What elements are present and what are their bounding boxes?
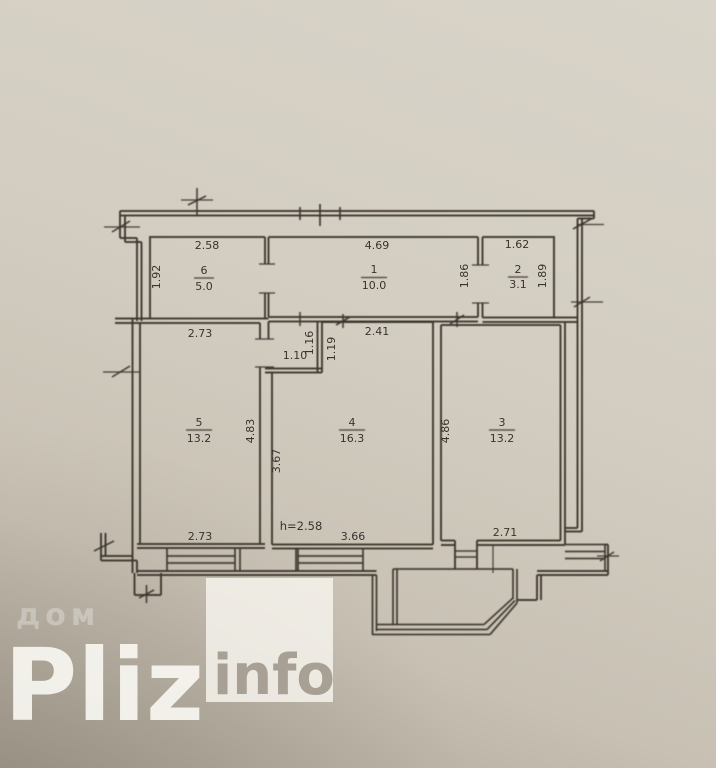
- dim-room5-right: 4.83: [244, 419, 257, 444]
- room-2-area: 3.1: [509, 278, 527, 291]
- room-3-number: 3: [499, 416, 506, 429]
- dim-room4-left: 3.67: [270, 449, 283, 474]
- room-4-number: 4: [349, 416, 356, 429]
- room-5-area: 13.2: [187, 432, 212, 445]
- watermark-info-text: info: [213, 648, 335, 704]
- ceiling-height-note: h=2.58: [280, 519, 323, 533]
- room-walls: [115, 237, 578, 549]
- room-1-number: 1: [371, 263, 378, 276]
- floor-plan-photo: 2.58 1.92 6 5.0 4.69 1.86 1 10.0 1.62 1.…: [0, 0, 716, 768]
- room-3-area: 13.2: [490, 432, 515, 445]
- room-4-area: 16.3: [340, 432, 365, 445]
- dim-room5-top: 2.73: [188, 327, 213, 340]
- dim-room4-top: 2.41: [365, 325, 390, 338]
- room-6-number: 6: [201, 264, 208, 277]
- room-label-underlines: [186, 277, 528, 430]
- dim-room1-right: 1.86: [458, 264, 471, 289]
- dim-room4-bottom: 3.66: [341, 530, 366, 543]
- room-2-number: 2: [515, 263, 522, 276]
- dim-room3-left: 4.86: [439, 419, 452, 444]
- balcony: [373, 569, 518, 635]
- dim-room3-bottom: 2.71: [493, 526, 518, 539]
- dim-room1-top: 4.69: [365, 239, 390, 252]
- dim-room2-top: 1.62: [505, 238, 530, 251]
- dim-room5-bottom: 2.73: [188, 530, 213, 543]
- watermark-brand-text: Pliz: [4, 636, 204, 736]
- room-6-area: 5.0: [195, 280, 213, 293]
- room-1-area: 10.0: [362, 279, 387, 292]
- room-5-number: 5: [196, 416, 203, 429]
- dim-room2-right: 1.89: [536, 264, 549, 289]
- windows: [167, 204, 605, 571]
- dim-room6-left: 1.92: [150, 265, 163, 290]
- dim-nook-outer: 1.16: [303, 331, 316, 356]
- dim-nook-inner: 1.19: [325, 337, 338, 362]
- dim-room6-top: 2.58: [195, 239, 220, 252]
- dimension-labels: 2.58 1.92 6 5.0 4.69 1.86 1 10.0 1.62 1.…: [150, 238, 549, 543]
